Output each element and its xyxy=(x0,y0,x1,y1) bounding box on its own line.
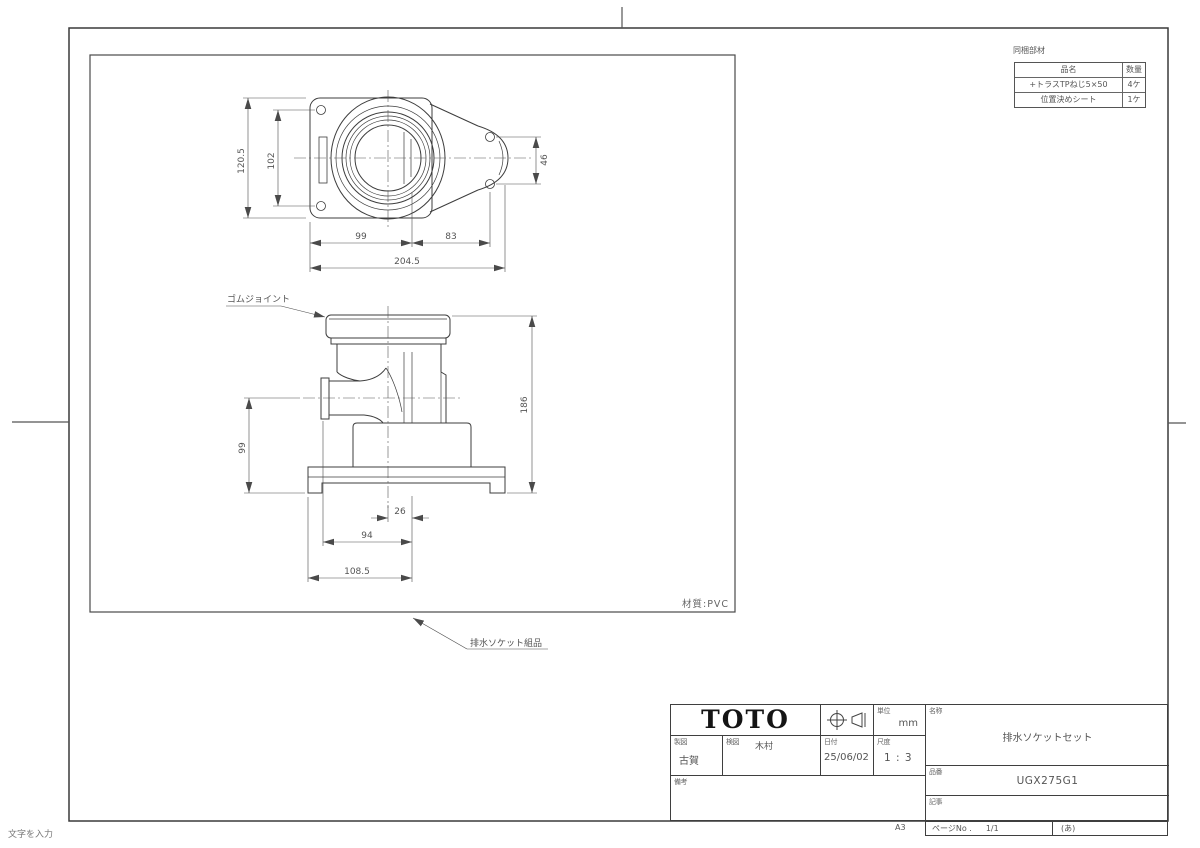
date-value: 25/06/02 xyxy=(824,752,869,763)
leader-lines xyxy=(226,306,548,649)
part-name: 位置決めシート xyxy=(1015,93,1123,107)
parts-table-header: 品名 数量 xyxy=(1015,63,1145,77)
product-name-label: 名称 xyxy=(929,706,942,716)
date-label: 日付 xyxy=(824,737,837,747)
dim-top-right-span: 83 xyxy=(445,232,456,242)
front-view xyxy=(308,315,505,493)
unit-label: 単位 xyxy=(877,706,890,716)
part-qty: 1ケ xyxy=(1123,93,1145,107)
parts-row: 位置決めシート 1ケ xyxy=(1015,92,1145,107)
toto-logo: TOTO xyxy=(671,705,820,735)
part-number: UGX275G1 xyxy=(926,775,1169,787)
screw-hole xyxy=(317,202,326,211)
parts-table-title: 同梱部材 xyxy=(1013,45,1045,56)
date-cell: 日付 25/06/02 xyxy=(821,736,874,776)
part-number-cell: 品番 UGX275G1 xyxy=(926,766,1169,796)
page-number-value: 1/1 xyxy=(986,824,999,833)
parts-table: 品名 数量 +トラスTPねじ5×50 4ケ 位置決めシート 1ケ xyxy=(1014,62,1146,108)
title-block: TOTO 単位 mm 製図 古賀 検図 木村 日付 25/06/02 尺度 1 … xyxy=(670,704,1168,821)
paper-size-label: A3 xyxy=(895,823,906,832)
unit-cell: 単位 mm xyxy=(874,705,926,736)
product-name: 排水ソケットセット xyxy=(926,729,1169,744)
dim-front-flange-width: 108.5 xyxy=(344,567,370,577)
text-input-hint[interactable]: 文字を入力 xyxy=(8,827,53,840)
parts-col-name: 品名 xyxy=(1015,63,1123,77)
dim-front-overall-height: 186 xyxy=(520,396,530,413)
top-view-dimensions xyxy=(243,98,541,272)
parts-col-qty: 数量 xyxy=(1123,63,1145,77)
dim-top-hole-pitch: 102 xyxy=(267,152,277,169)
scale-label: 尺度 xyxy=(877,737,890,747)
dim-top-nose-pitch: 46 xyxy=(540,154,550,166)
checker-label: 検図 xyxy=(726,737,739,747)
dim-top-overall-height: 120.5 xyxy=(237,148,247,174)
dim-top-overall-width: 204.5 xyxy=(394,257,420,267)
page-number-cell: ページNo . 1/1 xyxy=(926,822,1053,835)
part-name: +トラスTPねじ5×50 xyxy=(1015,78,1123,92)
checker-name: 木村 xyxy=(755,739,773,752)
screw-hole xyxy=(317,106,326,115)
page-number-strip: ページNo . 1/1 (あ) xyxy=(925,821,1168,836)
dim-front-spigot-height: 99 xyxy=(238,442,248,454)
part-qty: 4ケ xyxy=(1123,78,1145,92)
dim-front-offset: 26 xyxy=(394,507,406,517)
page-number-label: ページNo . xyxy=(932,823,972,834)
checker-cell: 検図 木村 xyxy=(723,736,821,776)
remarks-label: 備考 xyxy=(674,777,687,787)
third-angle-projection-icon xyxy=(821,705,874,735)
top-view-centerlines xyxy=(294,90,534,230)
projection-symbol-cell xyxy=(821,705,874,736)
sheet-frame xyxy=(12,7,1186,821)
dim-front-base-width: 94 xyxy=(361,531,373,541)
drafter-label: 製図 xyxy=(674,737,687,747)
notes-label: 記事 xyxy=(929,797,942,807)
front-view-dimensions xyxy=(244,316,537,582)
revision-value: (あ) xyxy=(1061,823,1075,834)
product-name-cell: 名称 排水ソケットセット xyxy=(926,705,1169,766)
revision-cell: (あ) xyxy=(1053,822,1167,835)
logo-cell: TOTO xyxy=(671,705,821,736)
notes-cell: 記事 xyxy=(926,796,1169,822)
remarks-cell: 備考 xyxy=(671,776,926,822)
scale-cell: 尺度 1 : 3 xyxy=(874,736,926,776)
drafter-cell: 製図 古賀 xyxy=(671,736,723,776)
rubber-joint-label: ゴムジョイント xyxy=(227,293,290,305)
scale-value: 1 : 3 xyxy=(884,752,913,764)
unit-value: mm xyxy=(899,718,918,729)
dim-top-left-span: 99 xyxy=(355,232,367,242)
screw-hole xyxy=(486,133,495,142)
material-label: 材質:PVC xyxy=(682,598,729,610)
drafter-name: 古賀 xyxy=(679,752,699,767)
assembly-label: 排水ソケット組品 xyxy=(470,637,542,649)
parts-row: +トラスTPねじ5×50 4ケ xyxy=(1015,77,1145,92)
